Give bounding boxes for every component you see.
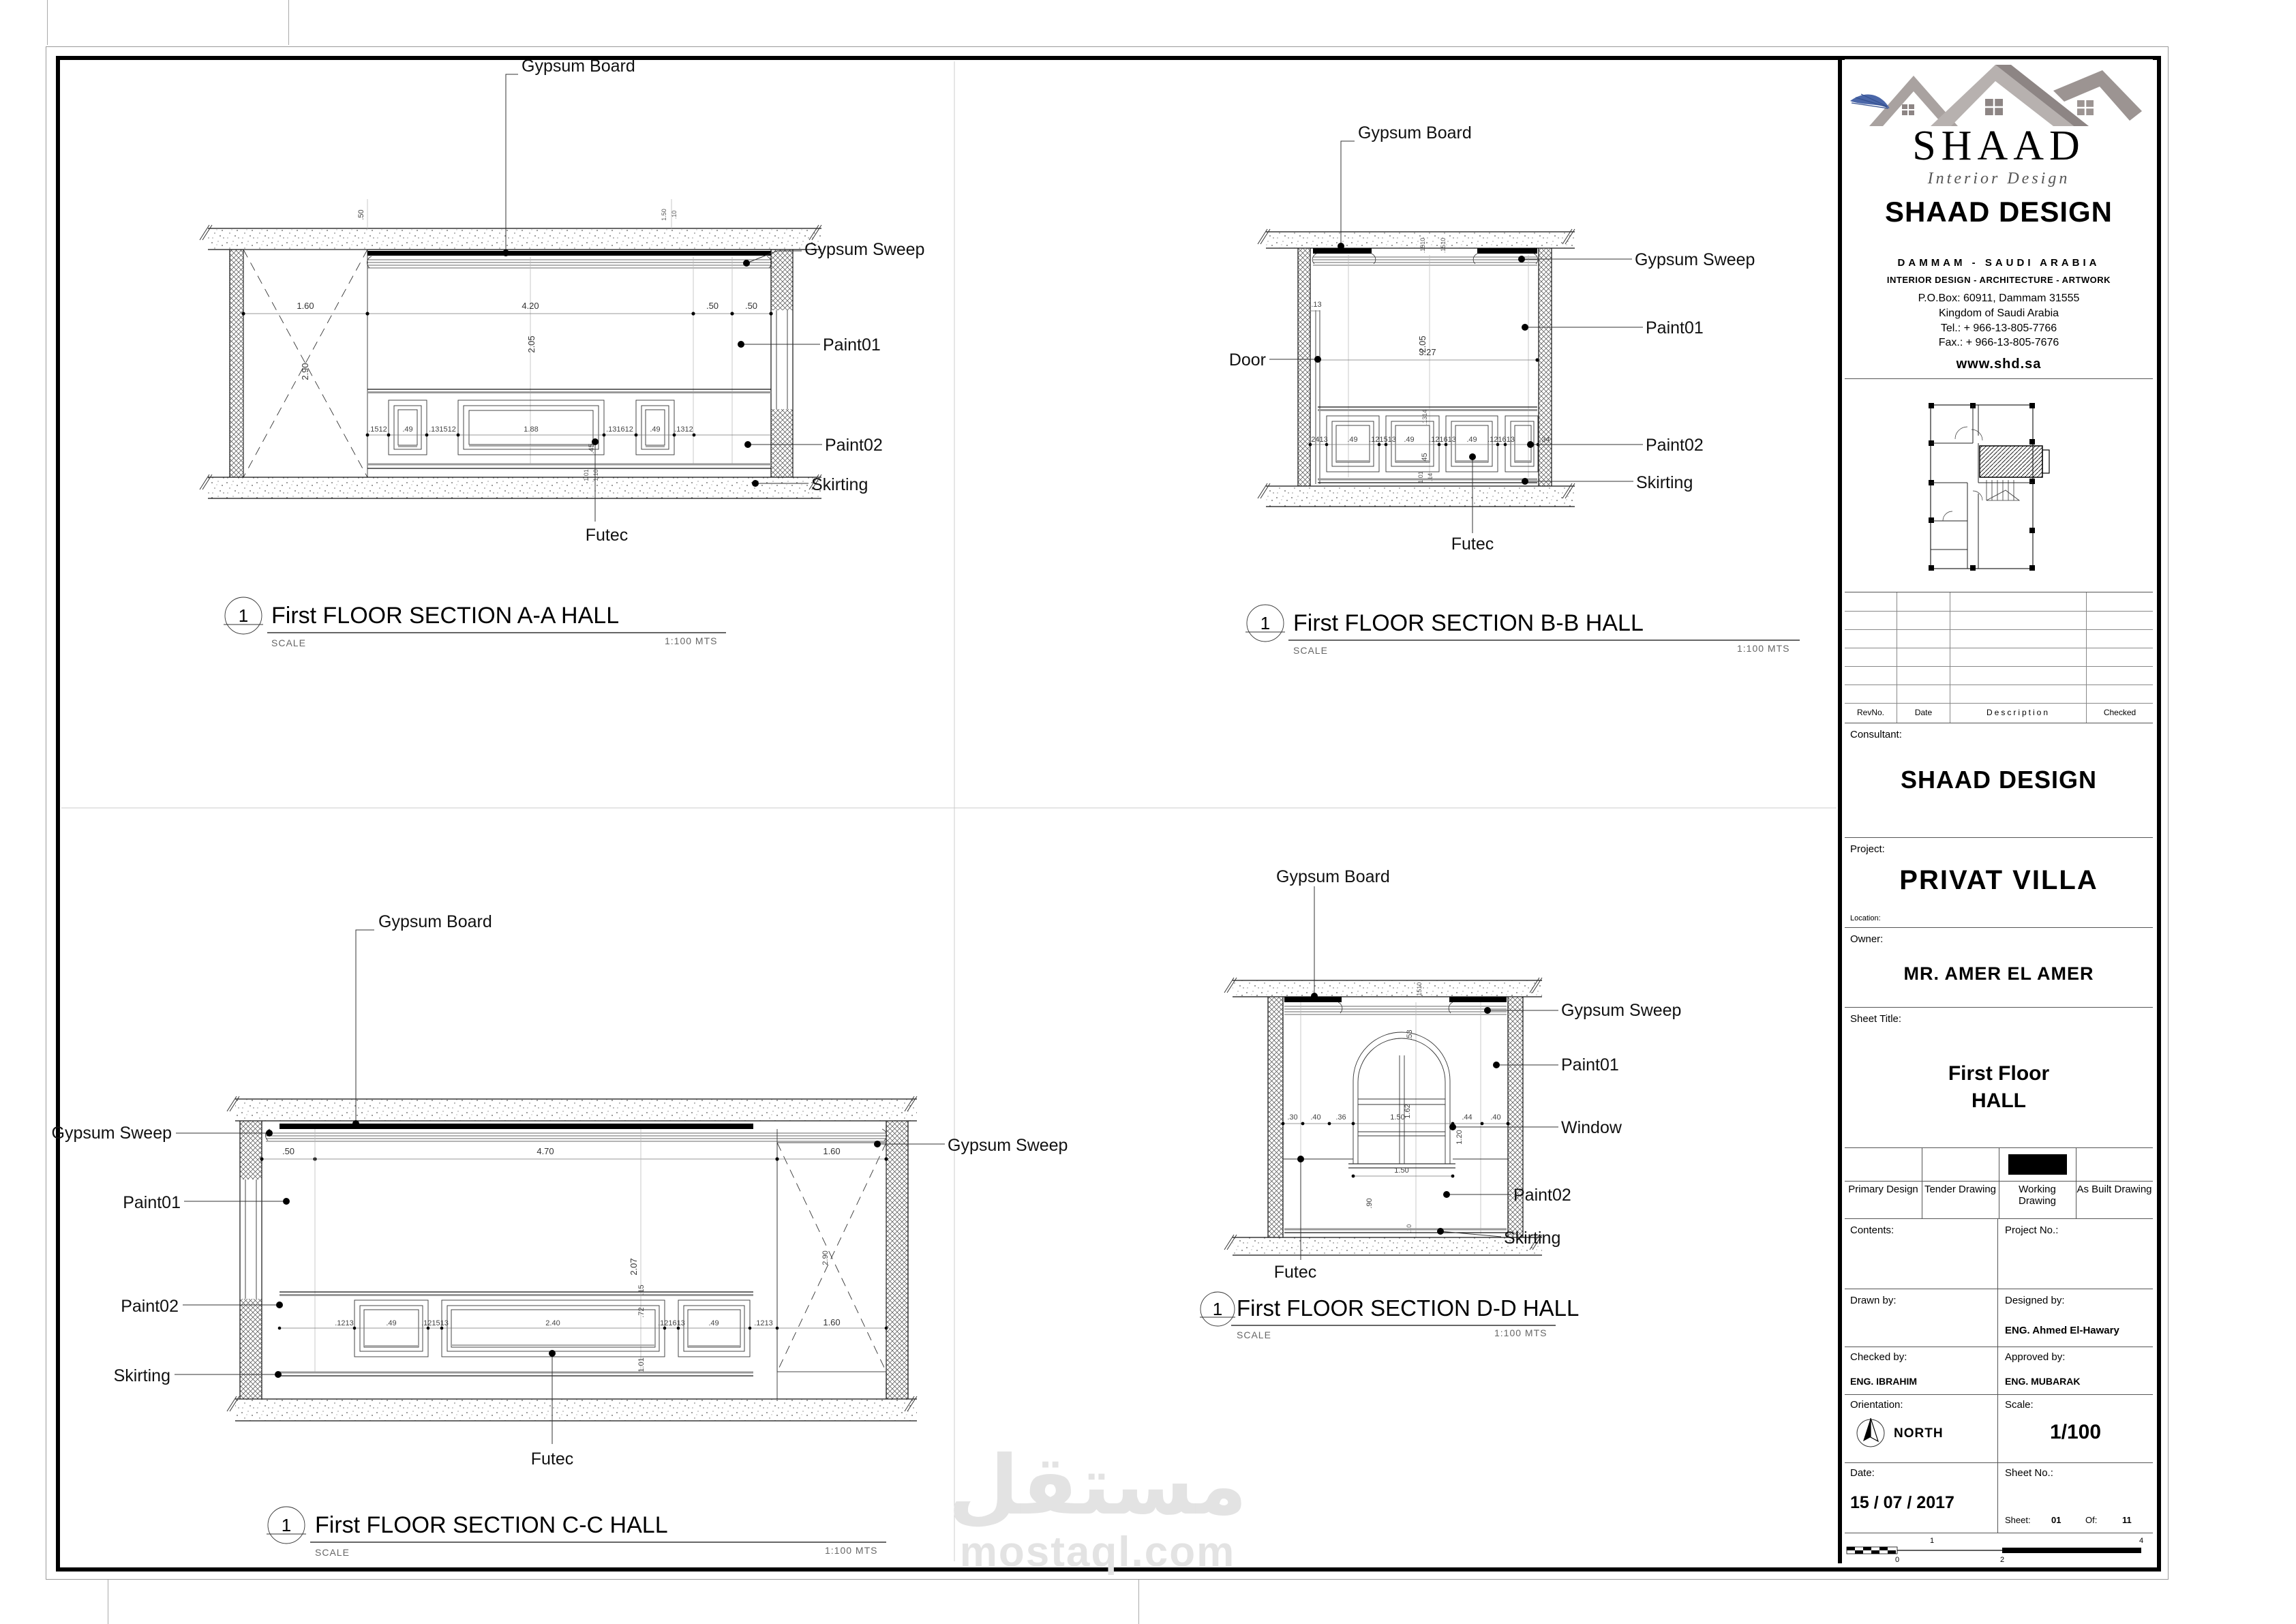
company-name: SHAAD DESIGN [1845,196,2153,228]
scale-value: 1:100 MTS [1737,643,1789,654]
gypsum-sweep-label: Gypsum Sweep [804,240,924,259]
drawing-type-table: Primary Design Tender Drawing Working Dr… [1845,1147,2153,1218]
dim-label: .90 [1365,1198,1374,1208]
drawing-title: First FLOOR SECTION D-D HALL [1237,1295,1579,1321]
scale-value: 1/100 [1998,1421,2153,1444]
location-label: Location: [1850,914,1881,922]
gypsum-board-label: Gypsum Board [378,912,492,931]
section-c-c-title: 1 First FLOOR SECTION C-C HALL SCALE 1:1… [267,1507,886,1558]
sheet-title-label: Sheet Title: [1850,1013,1901,1025]
paint01-label: Paint01 [1646,318,1704,337]
dim-label: .72 [637,1307,646,1317]
type-as-built-drawing: As Built Drawing [2076,1184,2153,1195]
dim-label: .50 [706,301,719,311]
keyplan-section [1845,378,2153,592]
drawing-sheet-page: { "watermark": { "arabic": "مستقل", "lat… [0,0,2296,1624]
dim-label: .1510 [1419,238,1426,254]
paint01-label: Paint01 [1561,1055,1619,1074]
owner-name: MR. AMER EL AMER [1845,963,2153,984]
company-section: SHAAD Interior Design SHAAD DESIGN DAMMA… [1845,59,2153,378]
project-name: PRIVAT VILLA [1845,865,2153,896]
dim-label: .131612 [606,425,633,434]
graphic-scale-section: 0 1 2 4 [1845,1533,2153,1565]
dim-label: 1.01 [637,1357,646,1372]
company-logo [1849,63,2149,132]
working-drawing-checkbox [2008,1154,2067,1175]
drawing-title: First FLOOR SECTION A-A HALL [271,603,619,629]
scalebar-num: 2 [2000,1556,2004,1564]
checked-by-name: ENG. IBRAHIM [1850,1376,1917,1387]
drawing-title: First FLOOR SECTION B-B HALL [1293,610,1644,636]
dim-label: .30 [1287,1113,1297,1122]
annotation-paint01: Paint01 [738,335,881,355]
annotation-paint02: Paint02 [1443,1186,1571,1205]
annotation-gypsum-board: Gypsum Board [1276,867,1390,999]
checked-approved-section: Checked by: ENG. IBRAHIM Approved by: EN… [1845,1347,2153,1394]
dim-label: .15 [637,1284,646,1295]
paint02-label: Paint02 [825,436,883,455]
dim-label: .1512 [368,425,387,434]
orientation-scale-section: Orientation: NORTH Scale: 1/100 [1845,1394,2153,1462]
dim-label: 1.20 [1455,1130,1464,1144]
contents-section: Contents: Project No.: [1845,1218,2153,1289]
drawn-designed-section: Drawn by: Designed by: ENG. Ahmed El-Haw… [1845,1289,2153,1347]
contents-label: Contents: [1850,1224,1894,1236]
dim-label: .2413 [1309,436,1328,444]
dim-label: 3.27 [1419,347,1436,357]
dim-label: .121613 [1487,436,1515,444]
project-section: Project: PRIVAT VILLA Location: [1845,837,2153,927]
dim-label: 1.60 [823,1146,840,1156]
dim-label: .49 [650,425,660,434]
skirting-label: Skirting [114,1366,170,1385]
dim-label: .36 [1335,1113,1346,1122]
dim-label: .49 [386,1319,396,1327]
dim-label: .1213 [335,1319,354,1327]
of-value: 11 [2122,1515,2132,1525]
dim-label: 1.88 [524,425,538,434]
annotation-paint02: Paint02 [1527,436,1704,455]
dim-label: .34 [1539,436,1550,444]
company-city: DAMMAM - SAUDI ARABIA [1845,257,2153,269]
section-b-b-title: 1 First FLOOR SECTION B-B HALL SCALE 1:1… [1245,605,1800,656]
gypsum-sweep-label: Gypsum Sweep [52,1124,172,1143]
consultant-label: Consultant: [1850,729,1902,740]
annotation-gypsum-sweep: Gypsum Sweep [1518,250,1755,269]
dim-label: .121513 [421,1319,449,1327]
paint02-label: Paint02 [1513,1186,1571,1205]
scale-value: 1:100 MTS [825,1545,877,1556]
arched-window [1348,1032,1455,1168]
dim-label: .1213 [754,1319,773,1327]
scale-word: SCALE [1237,1329,1271,1340]
annotation-paint02: Paint02 [744,436,883,455]
brand-subtitle: Interior Design [1845,170,2153,188]
dim-label: .13 [1311,301,1321,309]
section-c-c-drawing: .50 4.70 1.60 2.07 2.90 .1213 .49 .12151… [52,912,1068,1558]
designed-by-name: ENG. Ahmed El-Hawary [2005,1325,2119,1336]
revision-table: RevNo. Date Description Checked [1845,592,2153,723]
sheet-no-label: Sheet No.: [2005,1467,2053,1479]
type-working-drawing: Working Drawing [1999,1184,2076,1207]
gypsum-board-label: Gypsum Board [1358,123,1472,142]
annotation-gypsum-board: Gypsum Board [502,57,635,256]
annotation-paint01: Paint01 [123,1193,290,1212]
of-word: Of: [2085,1515,2097,1525]
annotation-window: Window [1449,1118,1622,1137]
dim-label: .49 [1347,436,1357,444]
section-d-d-title: 1 First FLOOR SECTION D-D HALL SCALE 1:1… [1200,1292,1579,1340]
company-tel: Tel.: + 966-13-805-7766 [1845,322,2153,335]
gypsum-sweep-label: Gypsum Sweep [948,1136,1068,1155]
dim-label: 1.60 [823,1317,840,1327]
dim-label: .1510 [1440,238,1447,254]
gypsum-sweep-label: Gypsum Sweep [1561,1001,1681,1020]
futec-label: Futec [1451,535,1494,554]
company-pobox: P.O.Box: 60911, Dammam 31555 [1845,292,2153,305]
sheet-title-section: Sheet Title: First Floor HALL [1845,1007,2153,1147]
project-label: Project: [1850,843,1885,855]
sheet-title-line1: First Floor [1845,1062,2153,1085]
date-sheet-section: Date: 15 / 07 / 2017 Sheet No.: Sheet: 0… [1845,1462,2153,1533]
skirting-label: Skirting [811,475,868,494]
dim-label: 4.20 [522,301,539,311]
futec-label: Futec [1274,1263,1317,1282]
scalebar-num: 4 [2139,1537,2143,1545]
detail-number: 1 [282,1515,291,1535]
paint02-label: Paint02 [121,1297,179,1316]
graphic-scale-bar: 0 1 2 4 [1845,1533,2153,1566]
orientation-label: Orientation: [1850,1399,1903,1411]
dim-label: .10 [671,211,678,220]
dim-label: .49 [402,425,412,434]
dim-label: 1.50 [1390,1113,1404,1122]
logo-roofs-icon [1869,65,2142,126]
project-no-label: Project No.: [2005,1224,2058,1236]
scale-value: 1:100 MTS [665,635,717,646]
paint01-label: Paint01 [823,335,881,355]
company-services: INTERIOR DESIGN - ARCHITECTURE - ARTWORK [1845,275,2153,285]
approved-by-name: ENG. MUBARAK [2005,1376,2080,1387]
section-a-a-title: 1 First FLOOR SECTION A-A HALL SCALE 1:1… [224,597,726,648]
paint02-label: Paint02 [1646,436,1704,455]
section-a-a-drawing: 1.60 4.20 .50 .50 2.05 2.90 .50 1.50 .10… [200,57,924,648]
floor-plan-thumbnail [1924,398,2074,575]
section-d-d-drawing: .53 .1510 .30 .40 .36 1.50 .44 .40 1.62 … [1200,867,1681,1340]
rev-description-header: Description [1950,704,2086,723]
owner-label: Owner: [1850,933,1883,945]
detail-number: 1 [239,605,248,626]
gypsum-sweep-label: Gypsum Sweep [1635,250,1755,269]
drawing-title: First FLOOR SECTION C-C HALL [315,1512,668,1538]
dim-label: .1312 [674,425,693,434]
dim-label: 1.62 [1404,1104,1412,1118]
dim-label: 1.50 [661,209,667,221]
dim-label: 2.40 [545,1319,560,1327]
scale-label: Scale: [2005,1399,2034,1411]
designed-by-label: Designed by: [2005,1295,2065,1306]
scale-value: 1:100 MTS [1494,1327,1547,1338]
dim-label: .49 [1466,436,1477,444]
futec-label: Futec [531,1449,574,1469]
scalebar-num: 1 [1930,1537,1934,1545]
gypsum-board-label: Gypsum Board [522,57,635,76]
detail-number: 1 [1213,1299,1222,1319]
skirting-label: Skirting [1504,1229,1560,1248]
drawn-by-label: Drawn by: [1850,1295,1897,1306]
sheet-word: Sheet: [2005,1515,2031,1525]
annotation-gypsum-board: Gypsum Board [352,912,492,1127]
sheet-title-line2: HALL [1845,1089,2153,1113]
type-tender-drawing: Tender Drawing [1922,1184,1999,1195]
skirting-label: Skirting [1636,473,1693,492]
dim-label: 4.70 [537,1146,554,1156]
dim-label: .121613 [1429,436,1456,444]
dim-label: .50 [357,209,365,220]
wainscot-panels [354,1300,750,1357]
dim-label: .49 [1404,436,1414,444]
scalebar-num: 0 [1895,1556,1899,1564]
detail-number: 1 [1260,613,1270,633]
dim-label: .131512 [429,425,456,434]
dim-label: .50 [282,1146,294,1156]
company-website: www.shd.sa [1845,357,2153,372]
owner-section: Owner: MR. AMER EL AMER [1845,927,2153,1007]
revision-header-row: RevNo. Date Description Checked [1845,703,2153,723]
dim-label: 1.01 [1417,471,1424,483]
dim-label: 2.05 [526,335,537,352]
annotation-gypsum-board: Gypsum Board [1338,123,1472,250]
dim-label: 2.07 [629,1258,639,1275]
date-label: Date: [1850,1467,1875,1479]
consultant-section: Consultant: SHAAD DESIGN [1845,723,2153,837]
date-value: 15 / 07 / 2017 [1850,1493,1954,1513]
scale-word: SCALE [271,637,306,648]
dim-label: .40 [1490,1113,1500,1122]
approved-by-label: Approved by: [2005,1351,2065,1363]
consultant-name: SHAAD DESIGN [1845,766,2153,794]
company-fax: Fax.: + 966-13-805-7676 [1845,337,2153,349]
scale-word: SCALE [315,1547,350,1558]
sheet-value: 01 [2051,1515,2061,1525]
dim-label: .40 [1310,1113,1320,1122]
company-kingdom: Kingdom of Saudi Arabia [1845,307,2153,320]
futec-label: Futec [586,526,629,545]
title-block: SHAAD Interior Design SHAAD DESIGN DAMMA… [1845,59,2153,1565]
gypsum-board-label: Gypsum Board [1276,867,1390,886]
annotation-gypsum-sweep-left: Gypsum Sweep [52,1124,273,1143]
paint01-label: Paint01 [123,1193,181,1212]
door-label: Door [1229,350,1266,370]
dim-label: 1.50 [1394,1167,1408,1175]
dim-label: 1.60 [297,301,314,311]
dim-label: .121513 [1369,436,1396,444]
window-label: Window [1561,1118,1622,1137]
dim-label: 2.90 [821,1250,830,1265]
type-primary-design: Primary Design [1845,1184,1922,1195]
north-label: NORTH [1894,1426,1944,1441]
dim-label: 1.10 [592,469,599,481]
north-arrow-icon [1854,1415,1887,1448]
dim-label: .45 [1421,453,1429,463]
rev-no-header: RevNo. [1845,704,1897,723]
section-b-b-drawing: .13 .1510 .1510 2.05 3.27 .2413 .49 .121… [1229,123,1800,656]
dim-label: .1510 [1416,982,1423,998]
brand-wordmark: SHAAD [1845,122,2153,170]
titleblock-divider [1838,56,1842,1563]
dim-label: 1.01 [583,469,590,481]
scalebar-checker [1847,1547,1897,1554]
scale-word: SCALE [1293,645,1328,656]
checked-by-label: Checked by: [1850,1351,1907,1363]
rev-date-header: Date [1897,704,1950,723]
dim-label: .44 [1462,1113,1472,1122]
dim-label: .121613 [658,1319,685,1327]
dim-label: .50 [745,301,757,311]
dim-label: .1314 [1421,410,1428,425]
dim-label: 2.90 [300,363,310,380]
dim-label: .49 [708,1319,719,1327]
rev-checked-header: Checked [2086,704,2153,723]
